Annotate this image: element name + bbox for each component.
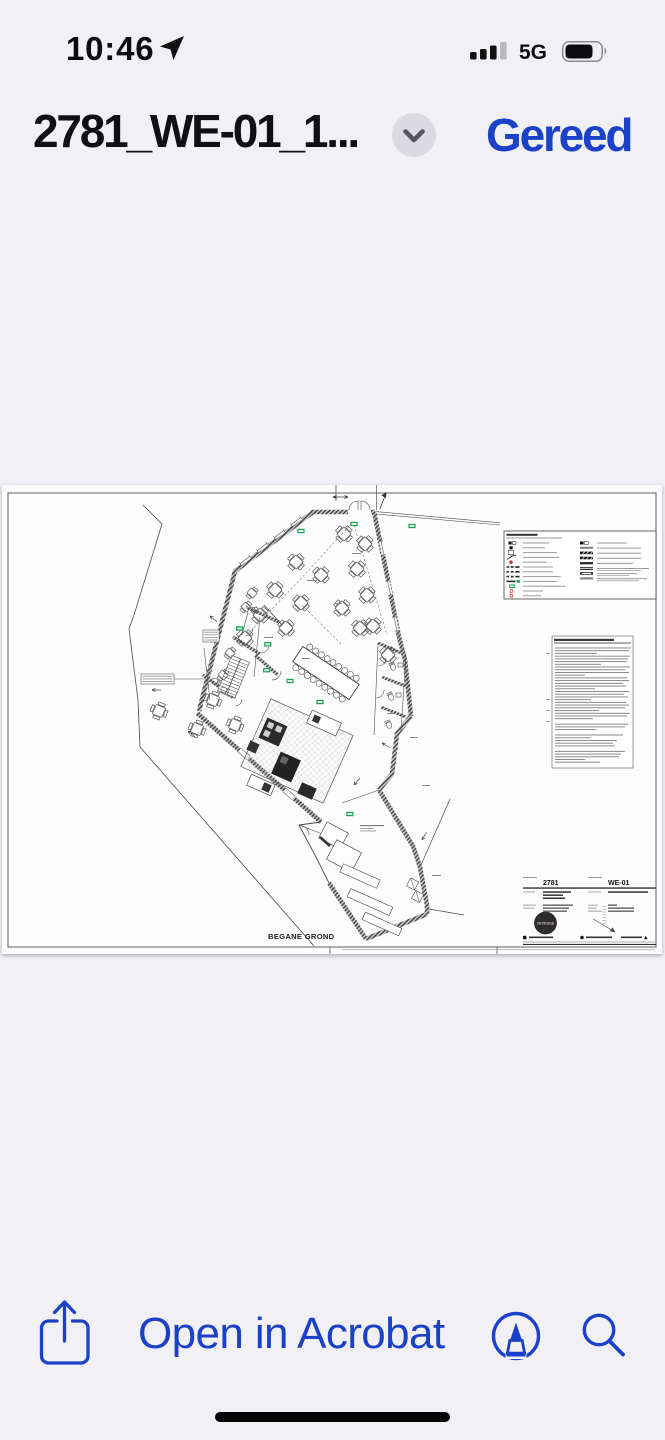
svg-text:BEGANE GROND: BEGANE GROND (268, 932, 335, 941)
svg-text:2781: 2781 (543, 880, 559, 887)
svg-text:WE-01: WE-01 (608, 880, 630, 887)
svg-text:5G: 5G (519, 41, 547, 64)
svg-text:verstoep: verstoep (537, 921, 555, 926)
